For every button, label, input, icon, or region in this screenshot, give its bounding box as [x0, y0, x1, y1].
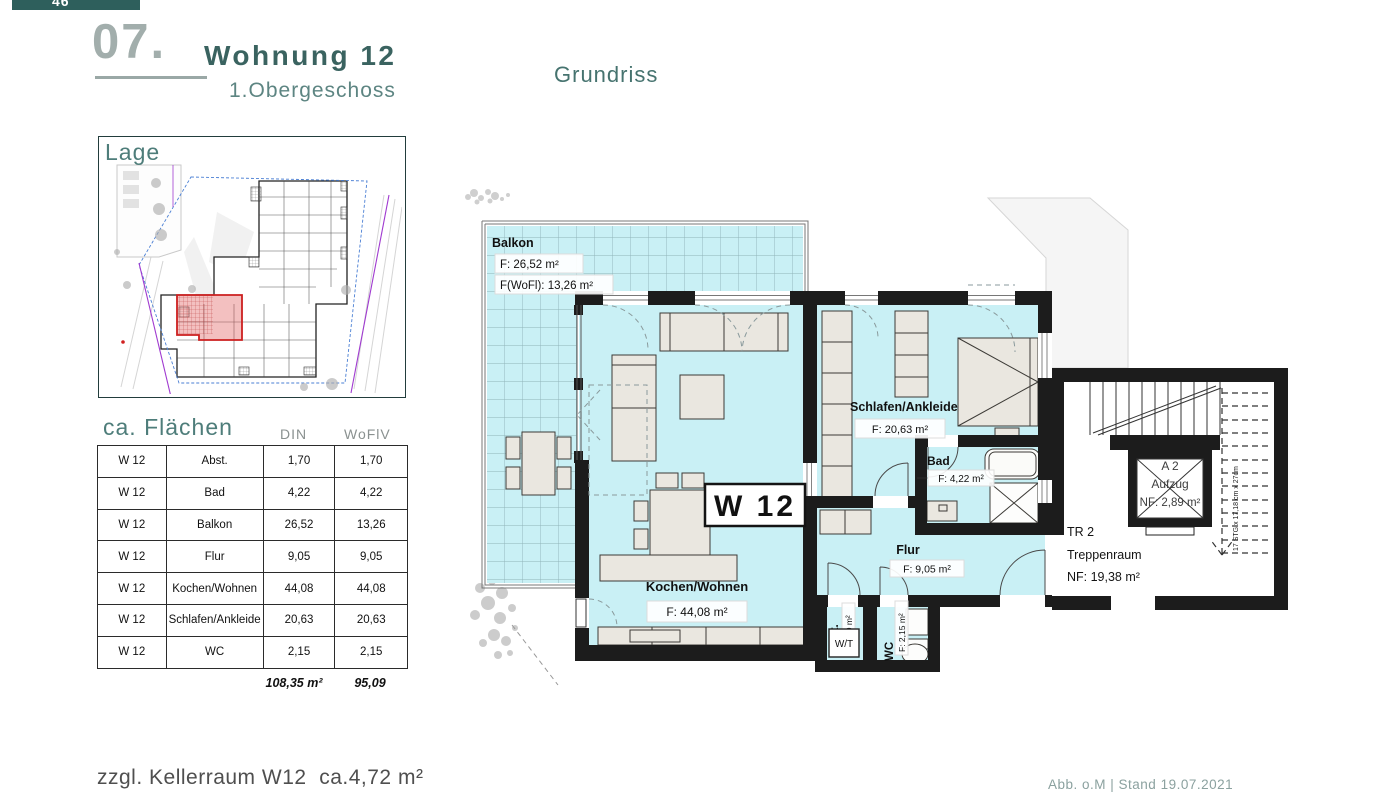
cell-unit: W 12	[98, 604, 167, 636]
cell-room: Flur	[166, 541, 263, 573]
bedroom-area: F: 20,63 m²	[872, 424, 929, 436]
bath-name: Bad	[927, 454, 950, 468]
site-marker-dot	[121, 340, 125, 344]
cell-din: 2,15	[263, 636, 335, 668]
cell-din: 20,63	[263, 604, 335, 636]
cell-woflv: 4,22	[335, 477, 408, 509]
area-table-section: ca. Flächen DIN WoFlV W 12 Abst. 1,70 1,…	[97, 414, 408, 714]
table-row: W 12 WC 2,15 2,15	[98, 636, 408, 668]
cell-woflv: 13,26	[335, 509, 408, 541]
cell-room: Abst.	[166, 446, 263, 478]
stairwell-id: TR 2	[1067, 525, 1094, 539]
stair-dimension-note: 17 STG x 17,18 cm x 27cm	[1233, 466, 1240, 551]
cell-woflv: 1,70	[335, 446, 408, 478]
cell-unit: W 12	[98, 509, 167, 541]
cell-woflv: 2,15	[335, 636, 408, 668]
column-header-woflv: WoFlV	[344, 426, 391, 442]
stairwell-area: NF: 19,38 m²	[1067, 570, 1140, 584]
site-main-building	[161, 181, 347, 377]
washer-dryer-label: W/T	[835, 639, 853, 650]
area-table: W 12 Abst. 1,70 1,70 W 12 Bad 4,22 4,22 …	[97, 445, 408, 669]
balcony-name: Balkon	[492, 236, 534, 250]
table-row: W 12 Balkon 26,52 13,26	[98, 509, 408, 541]
floor-plan: 17 STG x 17,18 cm x 27cm A 2 Aufzug NF: …	[450, 183, 1300, 698]
unit-label: W 12	[714, 490, 796, 523]
column-header-din: DIN	[280, 426, 307, 442]
hall-name: Flur	[896, 543, 920, 557]
site-plan-map	[99, 137, 402, 394]
cell-unit: W 12	[98, 636, 167, 668]
cell-din: 26,52	[263, 509, 335, 541]
wc-area: F: 2,15 m²	[897, 613, 907, 652]
living-name: Kochen/Wohnen	[646, 579, 748, 594]
cell-din: 44,08	[263, 573, 335, 605]
bedroom-name: Schlafen/Ankleide	[850, 400, 958, 414]
balcony-area-wofl: F(WoFl): 13,26 m²	[500, 280, 593, 292]
table-row: W 12 Bad 4,22 4,22	[98, 477, 408, 509]
site-highlight-unit	[177, 295, 242, 340]
floorplan-heading: Grundriss	[554, 62, 658, 88]
elevator-id: A 2	[1161, 459, 1179, 473]
tree-bottom-icon	[470, 577, 558, 685]
tree-top-icon	[465, 189, 510, 205]
cell-unit: W 12	[98, 446, 167, 478]
bath-area: F: 4,22 m²	[938, 474, 984, 485]
cell-unit: W 12	[98, 541, 167, 573]
footer-meta: Abb. o.M | Stand 19.07.2021	[1048, 777, 1233, 792]
balcony-area-din: F: 26,52 m²	[500, 259, 559, 271]
cell-room: WC	[166, 636, 263, 668]
table-row: W 12 Schlafen/Ankleide 20,63 20,63	[98, 604, 408, 636]
page-number-badge: 46	[12, 0, 140, 10]
page-subtitle: 1.Obergeschoss	[229, 79, 396, 103]
cell-din: 9,05	[263, 541, 335, 573]
cell-unit: W 12	[98, 573, 167, 605]
cell-din: 1,70	[263, 446, 335, 478]
table-row: W 12 Flur 9,05 9,05	[98, 541, 408, 573]
page-title: Wohnung 12	[204, 40, 396, 72]
wc-name: WC	[884, 642, 896, 661]
site-plan-heading: Lage	[105, 139, 160, 166]
cell-room: Balkon	[166, 509, 263, 541]
cell-room: Bad	[166, 477, 263, 509]
cell-room: Schlafen/Ankleide	[166, 604, 263, 636]
elevator: A 2 Aufzug NF: 2,89 m²	[1128, 450, 1212, 535]
section-underline	[95, 76, 207, 79]
table-row: W 12 Kochen/Wohnen 44,08 44,08	[98, 573, 408, 605]
elevator-label: Aufzug	[1151, 477, 1188, 491]
area-table-title: ca. Flächen	[103, 414, 233, 441]
total-din: 108,35 m²	[255, 676, 333, 690]
unit-label-box: W 12	[705, 484, 805, 526]
section-number: 07.	[92, 14, 166, 70]
cell-woflv: 9,05	[335, 541, 408, 573]
page-number: 46	[12, 0, 140, 9]
total-woflv: 95,09	[333, 676, 407, 690]
elevator-area: NF: 2,89 m²	[1140, 497, 1201, 509]
cellar-note: zzgl. Kellerraum W12 ca.4,72 m²	[97, 766, 423, 790]
cell-woflv: 20,63	[335, 604, 408, 636]
stairwell-name: Treppenraum	[1067, 548, 1142, 562]
cell-woflv: 44,08	[335, 573, 408, 605]
cell-room: Kochen/Wohnen	[166, 573, 263, 605]
cell-unit: W 12	[98, 477, 167, 509]
cell-din: 4,22	[263, 477, 335, 509]
hall-area: F: 9,05 m²	[903, 564, 951, 576]
site-plan-box: Lage	[98, 136, 406, 398]
table-row: W 12 Abst. 1,70 1,70	[98, 446, 408, 478]
living-area: F: 44,08 m²	[666, 605, 727, 619]
